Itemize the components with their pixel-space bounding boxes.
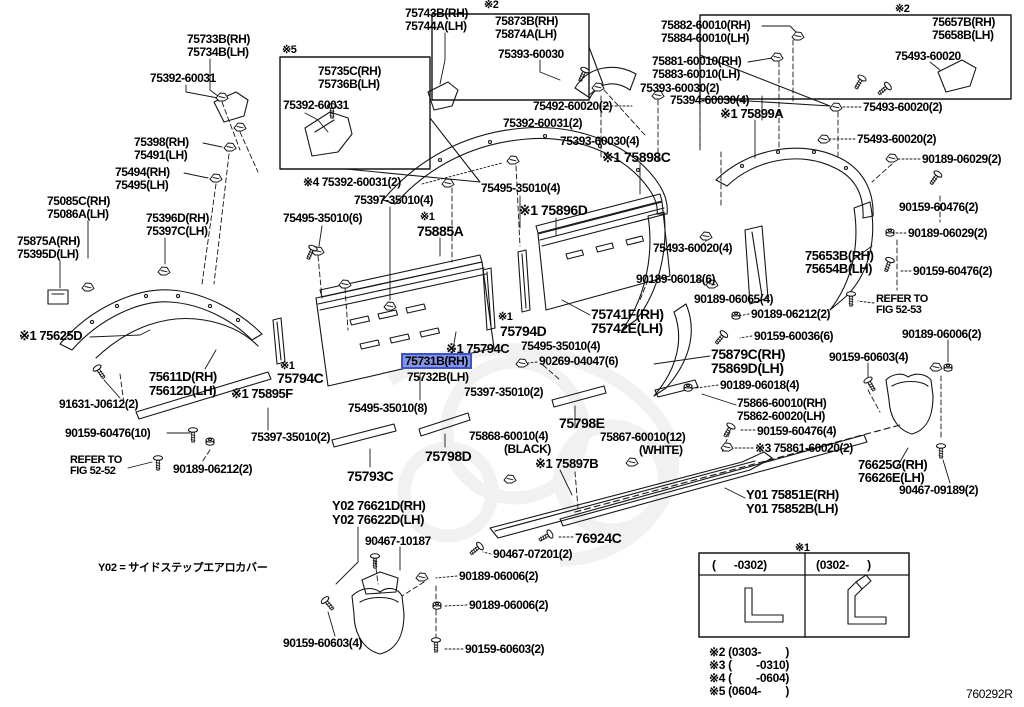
- part-label-90189-06029-2[interactable]: 90189-06029(2): [908, 227, 987, 239]
- part-label-75492-60020-2[interactable]: 75492-60020(2): [533, 100, 612, 112]
- part-label-white[interactable]: (WHITE): [639, 444, 683, 456]
- part-label-75884-60010-lh[interactable]: 75884-60010(LH): [661, 32, 749, 44]
- part-label-75862-60020-lh[interactable]: 75862-60020(LH): [737, 410, 825, 422]
- part-label-75869d-lh[interactable]: 75869D(LH): [711, 361, 784, 375]
- part-label-75793c[interactable]: 75793C: [347, 469, 393, 483]
- part-label-75654b-lh[interactable]: 75654B(LH): [805, 262, 872, 275]
- part-label-75875a-rh[interactable]: 75875A(RH): [17, 235, 80, 247]
- part-label-75397-35010-2[interactable]: 75397-35010(2): [464, 386, 543, 398]
- legend-note-2: ※2 (0303- ): [709, 645, 789, 659]
- part-label-75867-60010-12[interactable]: 75867-60010(12): [600, 431, 685, 443]
- part-label-90189-06006-2[interactable]: 90189-06006(2): [902, 328, 981, 340]
- part-label-90159-60476-2[interactable]: 90159-60476(2): [913, 265, 992, 277]
- part-label-75493-60020-4[interactable]: 75493-60020(4): [653, 242, 732, 254]
- part-label-1-75899a[interactable]: ※1 75899A: [720, 107, 783, 120]
- part-label-76924c[interactable]: 76924C: [575, 531, 621, 545]
- part-label-75397c-lh[interactable]: 75397C(LH): [146, 225, 208, 237]
- part-label-75885a[interactable]: 75885A: [417, 224, 463, 238]
- part-label-4-75392-60031-2[interactable]: ※4 75392-60031(2): [303, 176, 401, 188]
- part-label-91631-j0612-2[interactable]: 91631-J0612(2): [59, 398, 138, 410]
- part-label-75657b-rh[interactable]: 75657B(RH): [932, 16, 995, 28]
- part-label-75744a-lh[interactable]: 75744A(LH): [405, 20, 467, 32]
- part-label-black[interactable]: (BLACK): [504, 443, 551, 455]
- part-label-75882-60010-rh[interactable]: 75882-60010(RH): [661, 19, 750, 31]
- legend-note-4: ※4 ( -0604): [709, 671, 789, 685]
- part-label-75397-35010-2[interactable]: 75397-35010(2): [251, 431, 330, 443]
- part-label-90189-06006-2[interactable]: 90189-06006(2): [469, 599, 548, 611]
- part-label-75731b-rh[interactable]: 75731B(RH): [403, 355, 470, 367]
- part-label-1-75898c[interactable]: ※1 75898C: [602, 150, 670, 164]
- part-label-75398-rh[interactable]: 75398(RH): [134, 136, 189, 148]
- part-label-1: ※1: [498, 312, 512, 323]
- part-label-1: ※1: [420, 212, 434, 223]
- legend-note-5: ※5 (0604- ): [709, 684, 789, 698]
- part-label-75734b-lh[interactable]: 75734B(LH): [187, 46, 249, 58]
- part-label-75732b-lh[interactable]: 75732B(LH): [407, 371, 469, 383]
- part-label-75493-60020-2[interactable]: 75493-60020(2): [857, 133, 936, 145]
- part-label-75611d-rh[interactable]: 75611D(RH): [149, 370, 217, 383]
- part-label-90269-04047-6[interactable]: 90269-04047(6): [539, 355, 618, 367]
- part-label-1-75896d[interactable]: ※1 75896D: [519, 203, 587, 217]
- legend-table-col1: ( -0302): [712, 558, 767, 572]
- part-label-90159-60476-4[interactable]: 90159-60476(4): [757, 425, 836, 437]
- part-label-75798e[interactable]: 75798E: [559, 416, 605, 430]
- part-label-75742e-lh[interactable]: 75742E(LH): [591, 321, 663, 335]
- part-label-75866-60010-rh[interactable]: 75866-60010(RH): [737, 397, 826, 409]
- part-label-75735c-rh[interactable]: 75735C(RH): [318, 65, 381, 77]
- legend-table-col2: (0302- ): [816, 558, 871, 572]
- part-label-90467-09189-2[interactable]: 90467-09189(2): [899, 484, 978, 496]
- part-label-y01-75852b-lh[interactable]: Y01 75852B(LH): [746, 502, 838, 515]
- part-label-75868-60010-4[interactable]: 75868-60010(4): [469, 430, 548, 442]
- part-label-75493-60020[interactable]: 75493-60020: [895, 50, 961, 62]
- part-label-5: ※5: [282, 45, 296, 56]
- part-label-75392-60031[interactable]: 75392-60031: [283, 99, 349, 111]
- part-label-75085c-rh[interactable]: 75085C(RH): [47, 195, 110, 207]
- part-label-fig-52-53: FIG 52-53: [876, 305, 921, 316]
- part-label-75495-35010-4[interactable]: 75495-35010(4): [481, 182, 560, 194]
- part-label-90159-60476-2[interactable]: 90159-60476(2): [899, 201, 978, 213]
- part-label-75394-60030-4[interactable]: 75394-60030(4): [670, 94, 749, 106]
- part-label-75491-lh[interactable]: 75491(LH): [134, 149, 187, 161]
- part-label-75798d[interactable]: 75798D: [425, 449, 471, 463]
- part-label-75495-35010-6[interactable]: 75495-35010(6): [283, 212, 362, 224]
- part-label-75495-35010-4[interactable]: 75495-35010(4): [521, 340, 600, 352]
- part-label-75495-lh[interactable]: 75495(LH): [115, 179, 168, 191]
- part-label-1-75895f[interactable]: ※1 75895F: [231, 387, 293, 400]
- part-label-1-75897b[interactable]: ※1 75897B: [535, 457, 598, 470]
- part-label-3-75861-60020-2[interactable]: ※3 75861-60020(2): [755, 442, 853, 454]
- legend-note-3: ※3 ( -0310): [709, 658, 789, 672]
- part-label-75397-35010-4[interactable]: 75397-35010(4): [354, 194, 433, 206]
- part-label-y01-75851e-rh[interactable]: Y01 75851E(RH): [746, 488, 839, 501]
- parts-diagram: 75733B(RH)75734B(LH)75392-60031※575735C(…: [0, 0, 1024, 707]
- part-label-75494-rh[interactable]: 75494(RH): [115, 166, 170, 178]
- part-label-75392-60031-2[interactable]: 75392-60031(2): [503, 117, 582, 129]
- part-label-75393-60030[interactable]: 75393-60030: [498, 48, 564, 60]
- part-label-75874a-lh[interactable]: 75874A(LH): [495, 28, 557, 40]
- legend-table-marker: ※1: [795, 541, 810, 554]
- part-label-90189-06018-6[interactable]: 90189-06018(6): [636, 273, 715, 285]
- part-label-90159-60036-6[interactable]: 90159-60036(6): [754, 330, 833, 342]
- part-label-2: ※2: [484, 0, 498, 11]
- part-label-75736b-lh[interactable]: 75736B(LH): [318, 78, 380, 90]
- part-label-90159-60476-10[interactable]: 90159-60476(10): [65, 427, 150, 439]
- part-label-75658b-lh[interactable]: 75658B(LH): [932, 29, 994, 41]
- part-label-90467-07201-2[interactable]: 90467-07201(2): [493, 548, 572, 560]
- part-label-75794d[interactable]: 75794D: [500, 324, 546, 338]
- part-label-75733b-rh[interactable]: 75733B(RH): [187, 33, 250, 45]
- part-label-1-75625d[interactable]: ※1 75625D: [19, 329, 82, 342]
- y02-note: Y02 = サイドステップエアロカバー: [98, 559, 267, 575]
- part-label-90189-06018-4[interactable]: 90189-06018(4): [720, 379, 799, 391]
- part-label-90189-06029-2[interactable]: 90189-06029(2): [922, 153, 1001, 165]
- part-label-y02-76622d-lh[interactable]: Y02 76622D(LH): [332, 513, 424, 526]
- part-label-fig-52-52: FIG 52-52: [70, 466, 115, 477]
- part-label-75495-35010-8[interactable]: 75495-35010(8): [348, 402, 427, 414]
- part-label-75396d-rh[interactable]: 75396D(RH): [146, 212, 209, 224]
- part-label-75881-60010-rh[interactable]: 75881-60010(RH): [652, 55, 741, 67]
- part-label-75395d-lh[interactable]: 75395D(LH): [17, 248, 79, 260]
- part-label-2: ※2: [895, 4, 909, 15]
- part-label-90159-60603-2[interactable]: 90159-60603(2): [465, 643, 544, 655]
- part-label-y02-76621d-rh[interactable]: Y02 76621D(RH): [332, 499, 425, 512]
- part-label-90189-06212-2[interactable]: 90189-06212(2): [751, 308, 830, 320]
- figure-code: 760292R: [966, 687, 1013, 701]
- part-label-75393-60030-4[interactable]: 75393-60030(4): [560, 135, 639, 147]
- part-label-90189-06212-2[interactable]: 90189-06212(2): [173, 463, 252, 475]
- part-label-75493-60020-2[interactable]: 75493-60020(2): [863, 101, 942, 113]
- part-label-75086a-lh[interactable]: 75086A(LH): [47, 208, 109, 220]
- part-label-75873b-rh[interactable]: 75873B(RH): [495, 15, 558, 27]
- part-label-90467-10187[interactable]: 90467-10187: [365, 535, 431, 547]
- part-label-75743b-rh[interactable]: 75743B(RH): [405, 7, 468, 19]
- part-label-75612d-lh[interactable]: 75612D(LH): [149, 384, 216, 397]
- part-label-90159-60603-4[interactable]: 90159-60603(4): [829, 351, 908, 363]
- part-label-75392-60031[interactable]: 75392-60031: [150, 72, 216, 84]
- part-label-90189-06006-2[interactable]: 90189-06006(2): [459, 570, 538, 582]
- part-label-75794c[interactable]: 75794C: [277, 371, 323, 385]
- part-label-90189-06065-4[interactable]: 90189-06065(4): [694, 293, 773, 305]
- part-label-90159-60603-4[interactable]: 90159-60603(4): [283, 637, 362, 649]
- part-label-75883-60010-lh[interactable]: 75883-60010(LH): [652, 68, 740, 80]
